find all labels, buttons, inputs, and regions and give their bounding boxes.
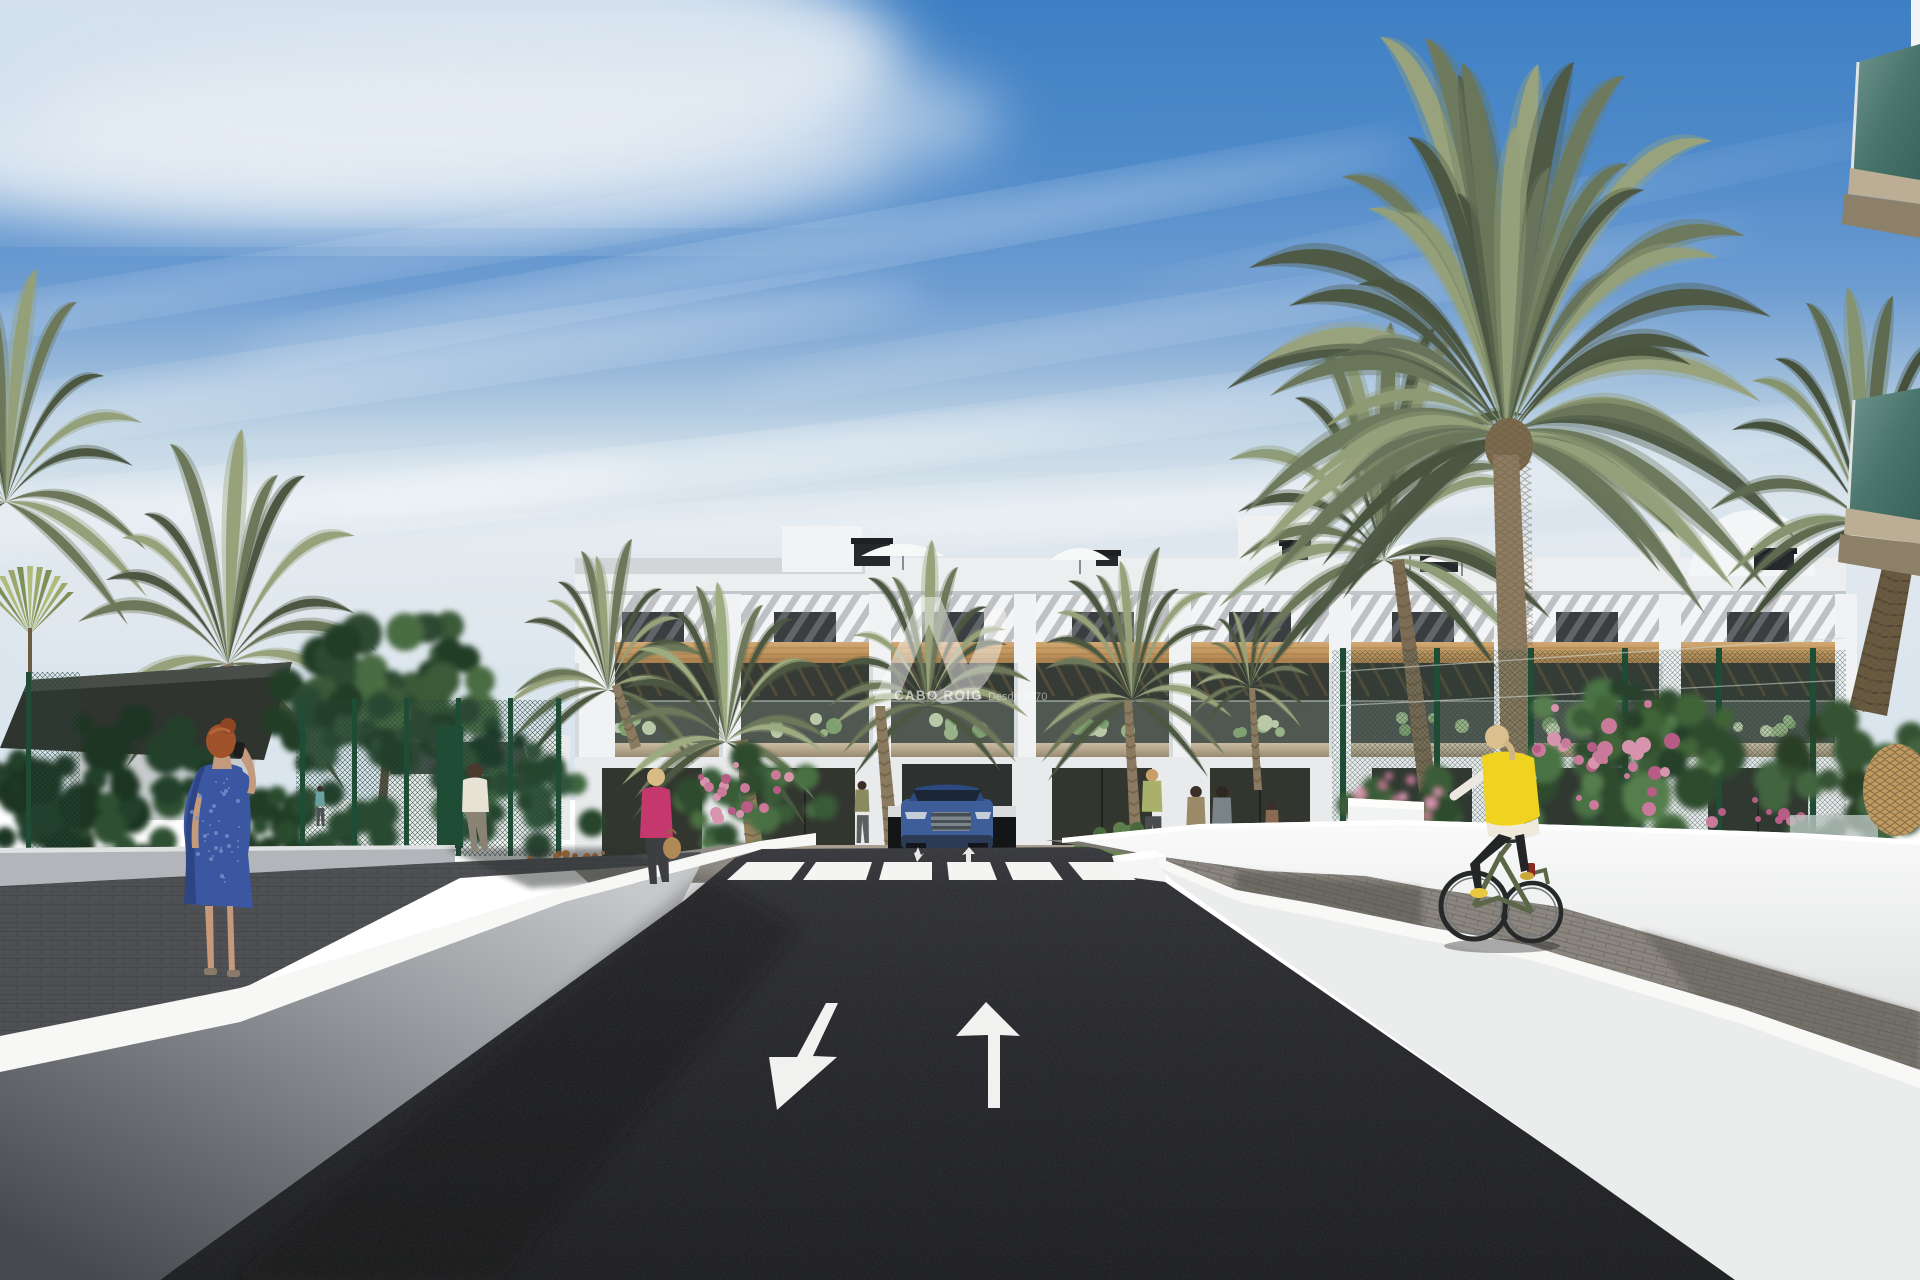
svg-text:CABO ROIG: CABO ROIG [894, 688, 983, 703]
svg-text:Desde 1970: Desde 1970 [988, 691, 1047, 703]
